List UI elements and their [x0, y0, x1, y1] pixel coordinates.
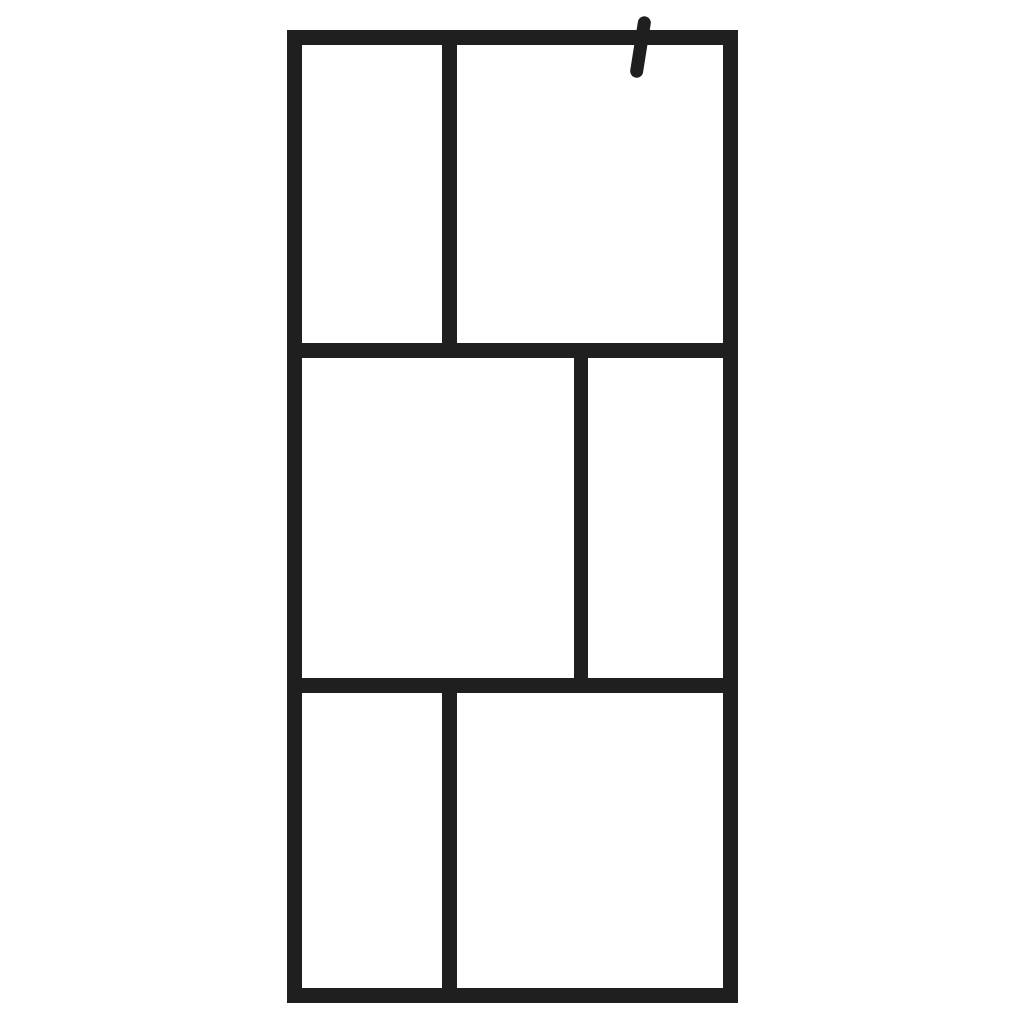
product-photo-canvas: [0, 0, 1024, 1024]
frame-vertical-divider-bottom: [442, 693, 457, 988]
glass-pane-bottom-left: [302, 693, 442, 988]
frame-horizontal-divider-upper: [302, 343, 723, 358]
glass-pane-bottom-right: [457, 693, 723, 988]
glass-pane-middle-left: [302, 358, 574, 678]
glass-pane-top-right: [457, 45, 723, 343]
frame-horizontal-divider-lower: [302, 678, 723, 693]
frame-vertical-divider-middle: [574, 358, 588, 678]
glass-pane-top-left: [302, 45, 442, 343]
shower-screen-frame: [287, 30, 738, 1003]
frame-vertical-divider-top: [442, 45, 457, 343]
glass-pane-middle-right: [588, 358, 723, 678]
